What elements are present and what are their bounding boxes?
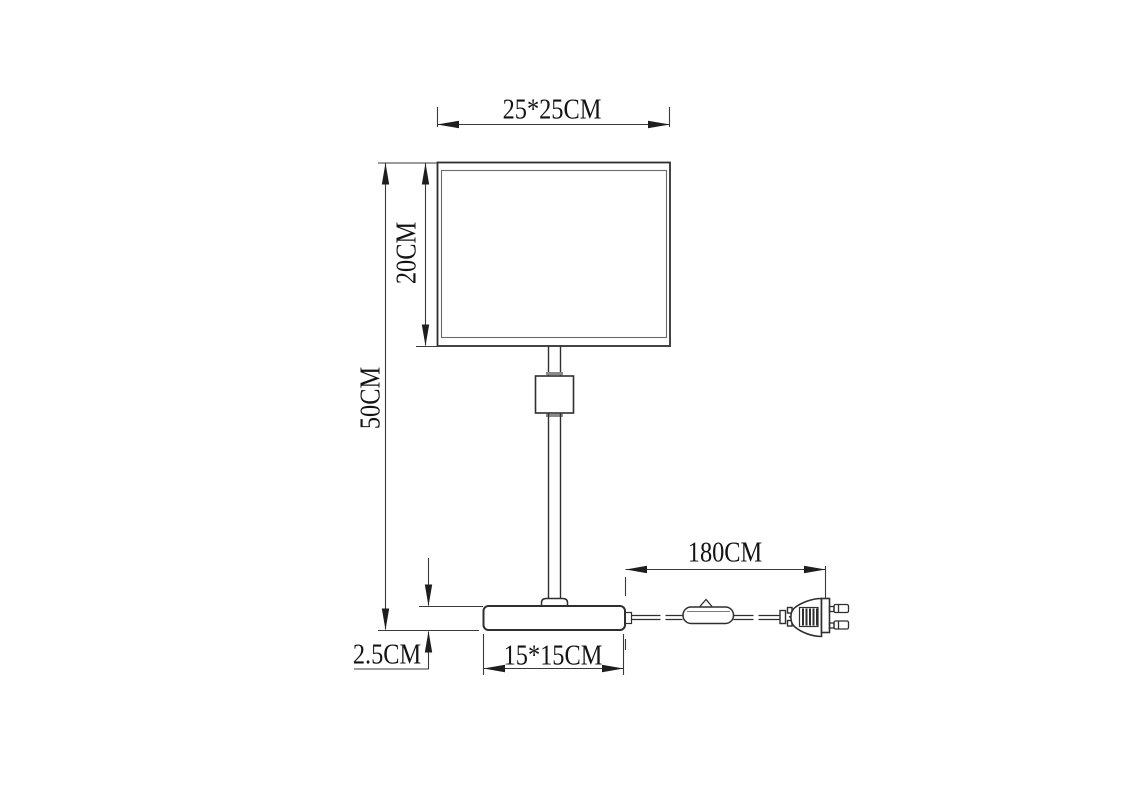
dim-label-base-size: 15*15CM bbox=[504, 642, 603, 671]
arrow-shade-width-right bbox=[648, 121, 670, 128]
dim-label-shade-width: 25*25CM bbox=[503, 96, 602, 125]
arrow-shade-width-left bbox=[437, 121, 459, 128]
lamp-dimension-diagram: 25*25CM 20CM 50CM 2.5CM 15*15CM 180CM bbox=[0, 0, 1123, 794]
arrow-cord-length-right bbox=[804, 566, 826, 573]
cord-segment-left bbox=[632, 616, 683, 620]
dim-label-base-height: 2.5CM bbox=[353, 641, 421, 670]
shade-inner-line bbox=[442, 171, 667, 338]
arrow-total-height-bottom bbox=[382, 609, 389, 631]
arrow-base-height-down bbox=[425, 585, 432, 607]
shade-outline bbox=[438, 163, 671, 347]
inline-switch bbox=[683, 600, 734, 624]
plug-strain-rib-1 bbox=[780, 611, 786, 624]
dimension-arrows bbox=[382, 121, 826, 672]
dim-label-shade-height: 20CM bbox=[393, 222, 422, 284]
arrow-total-height-top bbox=[382, 163, 389, 185]
plug-face-plate bbox=[822, 599, 830, 633]
lamp-shade bbox=[438, 163, 671, 347]
dim-label-cord-length: 180CM bbox=[688, 539, 762, 568]
lamp-base bbox=[484, 606, 626, 630]
arrow-shade-height-top bbox=[422, 163, 429, 185]
arrow-shade-height-bottom bbox=[422, 325, 429, 347]
plug-pin-top bbox=[830, 605, 849, 613]
stem-joint-block bbox=[536, 376, 574, 413]
power-plug bbox=[780, 599, 849, 637]
dim-label-total-height: 50CM bbox=[357, 367, 386, 429]
arrow-base-height-up bbox=[425, 631, 432, 653]
power-cord bbox=[625, 599, 849, 637]
switch-knob bbox=[700, 600, 713, 608]
arrow-base-size-left bbox=[484, 665, 506, 672]
lamp-stem bbox=[536, 346, 574, 606]
cord-segment-right bbox=[734, 616, 781, 620]
stem-base-collar bbox=[542, 599, 568, 607]
switch-body bbox=[683, 607, 734, 624]
dimension-lines bbox=[354, 107, 826, 675]
lamp bbox=[438, 163, 849, 637]
arrow-base-size-right bbox=[602, 665, 624, 672]
arrow-cord-length-left bbox=[626, 566, 648, 573]
plug-pin-bottom bbox=[830, 621, 849, 629]
